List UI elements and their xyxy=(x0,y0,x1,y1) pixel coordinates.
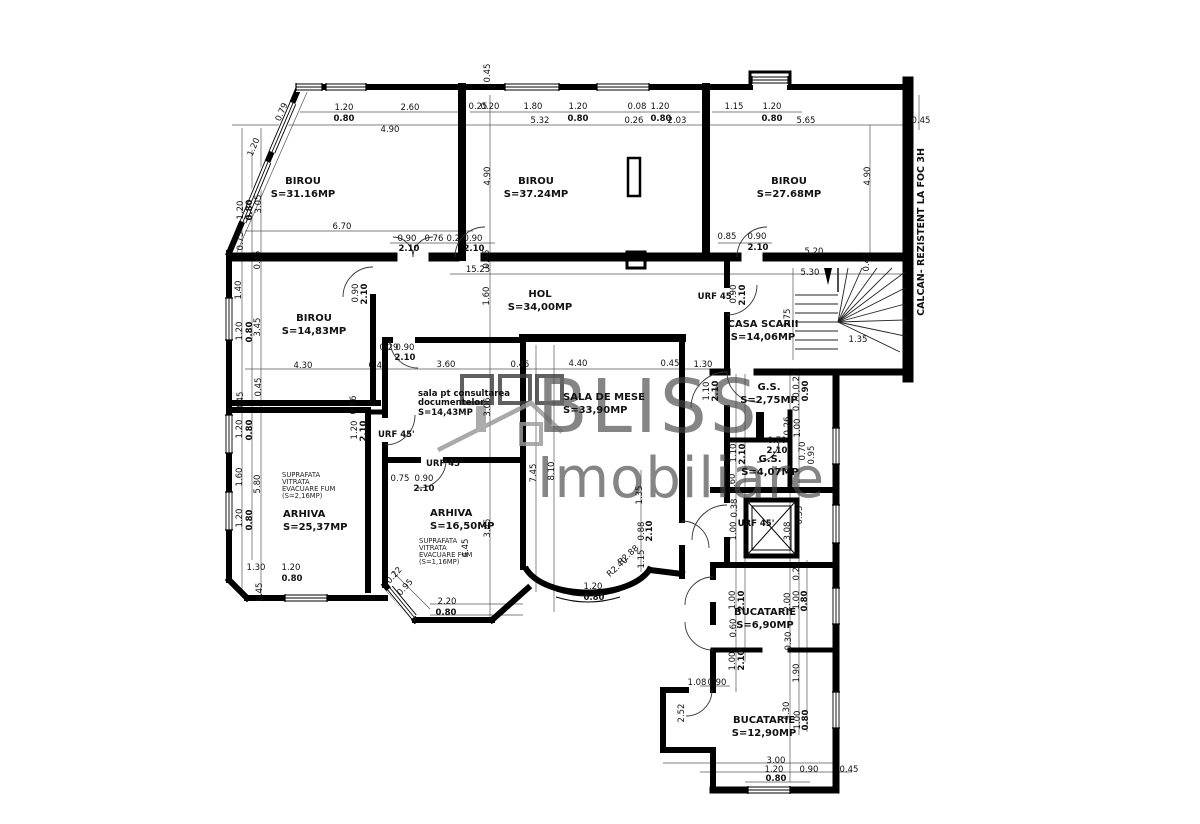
dimension-label: 0.85 xyxy=(718,232,737,242)
dimension-label: 0.90 xyxy=(708,678,727,688)
dimension-label: 0.70 xyxy=(768,436,787,446)
dimension-label: 7.45 xyxy=(529,464,539,483)
dimension-label: 1.80 xyxy=(524,102,543,112)
dimension-label: 1.20 xyxy=(569,102,588,112)
dimension-label: 0.45 xyxy=(840,765,859,775)
dimension-label: 2.10 xyxy=(359,420,369,441)
dimension-label: 0.08 xyxy=(628,102,647,112)
room-name: ARHIVA xyxy=(430,508,473,519)
room-area: S=4,07MP xyxy=(741,467,799,478)
dimension-label: 1.30 xyxy=(694,360,713,370)
dimension-label: 5.80 xyxy=(253,475,263,494)
room-name: ARHIVA xyxy=(283,509,326,520)
dimension-label: 1.20 xyxy=(235,420,245,439)
dimension-label: 2.10 xyxy=(414,484,435,494)
dimension-label: 0.45 xyxy=(253,251,263,270)
room-area: S=25,37MP xyxy=(283,522,348,533)
dimension-label: 0.45 xyxy=(369,361,388,371)
dimension-label: 0.45 xyxy=(255,583,265,602)
room-area: S=34,00MP xyxy=(508,302,573,313)
dimension-label: 0.20 xyxy=(481,102,500,112)
dimension-label: 2.10 xyxy=(711,380,721,401)
dimension-label: 0.90 xyxy=(464,234,483,244)
room-area: S=14,43MP xyxy=(418,408,473,418)
room-name: BIROU xyxy=(771,176,807,187)
dimension-label: 0.90 xyxy=(801,380,811,401)
dimension-label: 0.80 xyxy=(282,574,303,584)
door-label: URF 45' xyxy=(378,430,415,440)
dimension-label: 6.70 xyxy=(333,222,352,232)
room-area: S=14,06MP xyxy=(731,332,796,343)
dimension-label: 5.20 xyxy=(805,247,824,257)
dimension-label: 0.38 xyxy=(730,499,740,518)
dimension-label: 0.80 xyxy=(436,608,457,618)
dimension-label: 0.80 xyxy=(334,114,355,124)
dimension-label: 1.08 xyxy=(688,678,707,688)
room-name: documentelor xyxy=(418,398,485,408)
door-label: URF 45' xyxy=(426,459,463,469)
dimension-label: 2.10 xyxy=(737,649,747,670)
dimension-label: 1.35 xyxy=(849,335,868,345)
room-area: S=31.16MP xyxy=(271,189,336,200)
door-swing xyxy=(685,577,713,605)
dimension-label: 0.80 xyxy=(766,774,787,784)
dimension-label: 3.60 xyxy=(437,360,456,370)
dimension-label: 0.45 xyxy=(912,116,931,126)
door-swing xyxy=(682,521,709,548)
dimension-label: 1.40 xyxy=(234,281,244,300)
dimension-label: 4.40 xyxy=(569,359,588,369)
dimension-label: 0.75 xyxy=(391,474,410,484)
dimension-label: 5.32 xyxy=(531,116,550,126)
dimension-label: 0.90 xyxy=(398,234,417,244)
dimension-label: 1.20 xyxy=(235,509,245,528)
dimension-label: 0.95 xyxy=(807,446,817,465)
room-name: SALA DE MESE xyxy=(563,392,645,403)
dimension-label: 0.26 xyxy=(783,417,793,436)
room-name: HOL xyxy=(528,289,552,300)
door-swing xyxy=(685,622,713,650)
room-area: S=2,75MP xyxy=(740,395,798,406)
dimension-label: 3.45 xyxy=(253,318,263,337)
dimension-label: 0.90 xyxy=(800,765,819,775)
dimension-label: 4.90 xyxy=(863,167,873,186)
dimension-label: 4.30 xyxy=(294,361,313,371)
room-name: BUCATARIE xyxy=(733,715,795,726)
room-area: S=33,90MP xyxy=(563,405,628,416)
dimension-label: 3.06 xyxy=(483,398,493,417)
column xyxy=(628,158,640,196)
dimension-label: 0.80 xyxy=(801,709,811,730)
room-area: S=37.24MP xyxy=(504,189,569,200)
dimension-label: 3.05 xyxy=(254,195,264,214)
dimension-label: 5.65 xyxy=(797,116,816,126)
dimension-label: 0.75 xyxy=(236,232,246,251)
fire-wall-note: CALCAN- REZISTENT LA FOC 3H xyxy=(916,148,927,316)
room-area: S=14,83MP xyxy=(282,326,347,337)
dimension-label: 0.45 xyxy=(862,253,872,272)
dimension-label: 2.10 xyxy=(748,243,769,253)
dimension-label: 0.45 xyxy=(661,359,680,369)
dimension-label: 0.76 xyxy=(425,234,444,244)
dimension-label: 1.00 xyxy=(793,419,803,438)
dimension-label: 2.10 xyxy=(395,353,416,363)
dimension-label: 0.30 xyxy=(784,632,794,651)
floor-plan-page: BLISS Imobiliare 1.202.600.804.901.200.7… xyxy=(0,0,1200,824)
dimension-label: 0.90 xyxy=(415,474,434,484)
dimension-label: 0.95 xyxy=(395,577,415,598)
dimension-label: 1.20 xyxy=(235,322,245,341)
dimension-label: 0.80 xyxy=(245,419,255,440)
dimension-label: 2.10 xyxy=(738,443,748,464)
dimension-label: 4.90 xyxy=(381,125,400,135)
room-name: G.S. xyxy=(757,382,780,393)
room-name: BIROU xyxy=(285,176,321,187)
dimension-label: 2.10 xyxy=(399,244,420,254)
room-area: S=6,90MP xyxy=(736,620,794,631)
dimension-label: 1.35 xyxy=(635,486,645,505)
smoke-evacuation-note: (S=1,16MP) xyxy=(419,558,460,566)
dimension-label: 4.90 xyxy=(483,167,493,186)
dimension-label: 1.20 xyxy=(763,102,782,112)
room-name: G.S. xyxy=(758,454,781,465)
room-area: S=12,90MP xyxy=(732,728,797,739)
dimension-label: 2.10 xyxy=(645,520,655,541)
door-swing xyxy=(686,690,712,716)
dimension-label: 0.45 xyxy=(483,64,493,83)
dimension-label: 3.08 xyxy=(783,522,793,541)
dimension-label: 1.30 xyxy=(247,563,266,573)
dimension-label: 1.20 xyxy=(651,102,670,112)
dimension-label: 0.80 xyxy=(584,593,605,603)
dimension-label: 2.10 xyxy=(738,284,748,305)
dimension-label: 2.52 xyxy=(677,704,687,723)
dimension-label: 0.25 xyxy=(792,562,802,581)
smoke-evacuation-note: (S=2,16MP) xyxy=(282,492,323,500)
dimension-label: 0.60 xyxy=(728,474,738,493)
dimension-label: 0.26 xyxy=(625,116,644,126)
dimension-label: 0.45 xyxy=(482,250,492,269)
dimension-label: 0.45 xyxy=(511,360,530,370)
dimension-label: 0.90 xyxy=(396,343,415,353)
dimension-label: 0.80 xyxy=(245,509,255,530)
room-area: S=27.68MP xyxy=(757,189,822,200)
room-name: BUCATARIE xyxy=(734,607,796,618)
dimension-label: 0.45 xyxy=(254,378,264,397)
dimension-label: 0.86 xyxy=(349,396,359,415)
dimension-label: 1.20 xyxy=(335,103,354,113)
room-name: BIROU xyxy=(296,313,332,324)
dimension-label: 2.10 xyxy=(360,283,370,304)
dimension-label: 1.20 xyxy=(282,563,301,573)
dimension-label: 1.15 xyxy=(725,102,744,112)
dimension-label: 1.90 xyxy=(792,664,802,683)
dimension-label: 0.55 xyxy=(795,506,805,525)
door-label: URF 45' xyxy=(738,519,775,529)
room-area: S=16,50MP xyxy=(430,521,495,532)
floor-plan-canvas: BLISS Imobiliare 1.202.600.804.901.200.7… xyxy=(0,0,1200,824)
dimension-label: 5.30 xyxy=(801,268,820,278)
dimension-label: 0.45 xyxy=(236,392,246,411)
dimension-label: 2.60 xyxy=(401,103,420,113)
dimension-label: 2.03 xyxy=(668,116,687,126)
dimension-label: 2.20 xyxy=(438,597,457,607)
dimension-label: 1.60 xyxy=(482,287,492,306)
dimension-label: 0.90 xyxy=(748,232,767,242)
dimension-label: 1.60 xyxy=(235,468,245,487)
dimension-label: 0.80 xyxy=(568,114,589,124)
dimension-label: 8.10 xyxy=(547,462,557,481)
dimension-label: 0.80 xyxy=(800,590,810,611)
dimension-label: 0.80 xyxy=(762,114,783,124)
dimension-label: 1.20 xyxy=(246,137,263,158)
dimension-label: 1.20 xyxy=(584,582,603,592)
room-name: BIROU xyxy=(518,176,554,187)
room-name: CASA SCARII xyxy=(728,319,799,330)
